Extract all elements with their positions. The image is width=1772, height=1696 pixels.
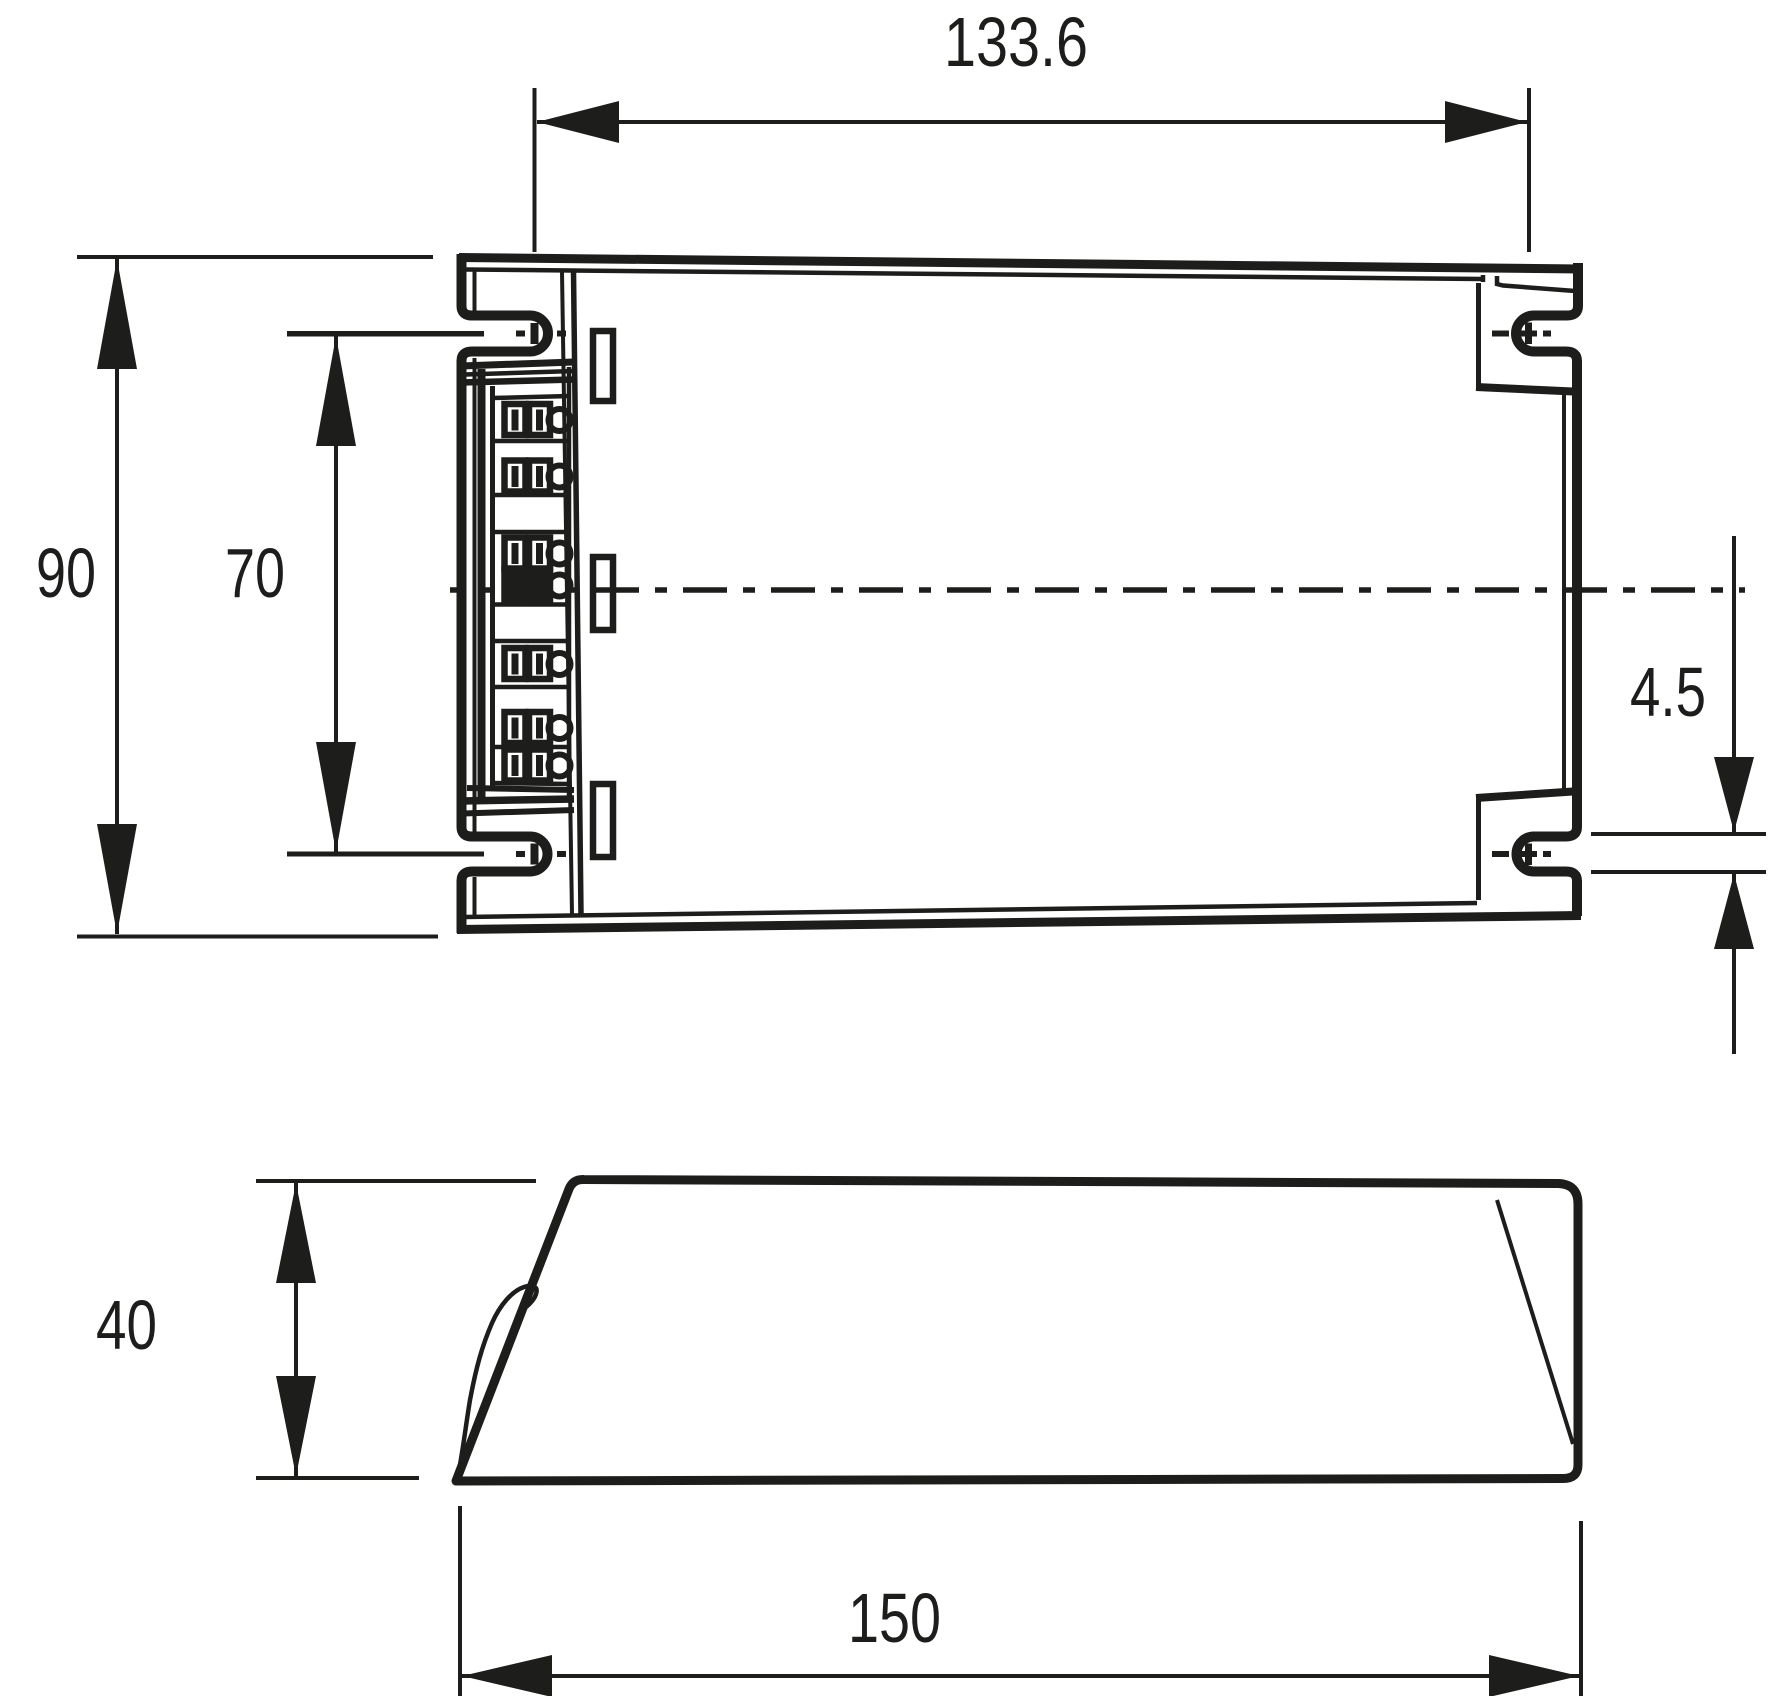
svg-text:90: 90	[36, 534, 96, 612]
svg-text:4.5: 4.5	[1630, 653, 1706, 731]
svg-text:40: 40	[96, 1286, 157, 1364]
svg-text:133.6: 133.6	[944, 3, 1088, 81]
svg-text:70: 70	[225, 534, 285, 612]
svg-text:150: 150	[848, 1579, 941, 1657]
